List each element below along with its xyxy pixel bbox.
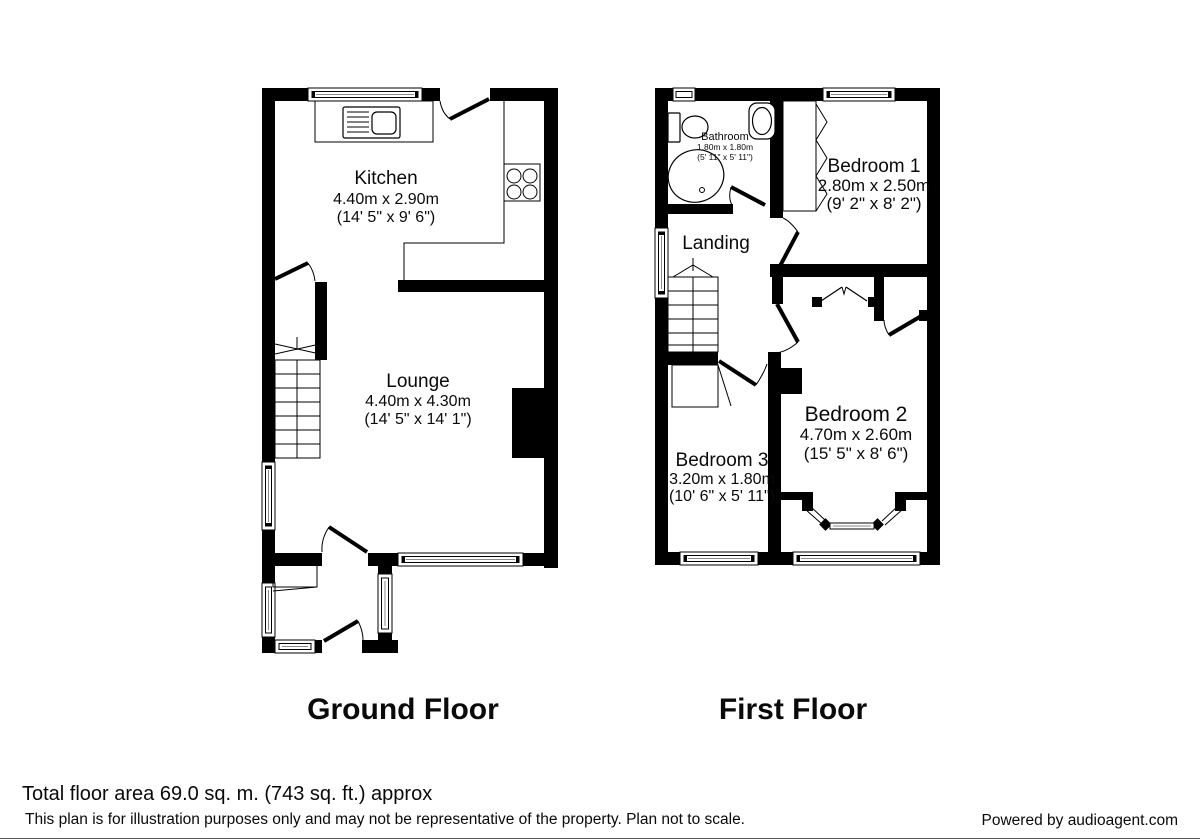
landing-label: Landing <box>682 233 750 254</box>
bathroom-dimensions-imperial: (5' 11" x 5' 11") <box>697 152 753 162</box>
lounge-side-window <box>262 462 275 530</box>
bathroom-door <box>730 187 765 205</box>
bedroom3-window <box>680 552 758 565</box>
first-floor-title: First Floor <box>719 693 868 726</box>
bedroom1-door <box>780 218 798 266</box>
kitchen-dimensions-imperial: (14' 5" x 9' 6") <box>337 209 435 226</box>
bedroom3-dimensions-imperial: (10' 6" x 5' 11") <box>669 488 775 505</box>
bedroom2-window <box>793 552 920 565</box>
bedroom3-door <box>719 361 767 385</box>
bedroom1-window <box>823 88 895 101</box>
lounge-dimensions-metric: 4.40m x 4.30m <box>365 393 471 410</box>
kitchen-window <box>308 88 422 101</box>
hall-front-window <box>275 640 315 653</box>
footer: Total floor area 69.0 sq. m. (743 sq. ft… <box>0 783 1200 839</box>
bedroom2-dimensions-metric: 4.70m x 2.60m <box>800 425 912 444</box>
lounge-door <box>322 527 367 552</box>
bedroom2-closet-double-doors <box>821 287 867 301</box>
basin-icon <box>749 103 775 139</box>
hall-closet <box>273 562 317 591</box>
bedroom3-dimensions-metric: 3.20m x 1.80m <box>669 471 775 488</box>
bedroom2-label: Bedroom 2 <box>805 403 908 426</box>
bathroom-window <box>673 88 695 101</box>
sink-bowl-icon <box>372 112 396 134</box>
stairs-first-floor <box>668 258 718 352</box>
floorplan-drawing: Kitchen 4.40m x 2.90m (14' 5" x 9' 6") L… <box>0 0 1200 840</box>
disclaimer-text: This plan is for illustration purposes o… <box>25 811 745 828</box>
stair-bulkhead <box>672 365 731 407</box>
kitchen-sink-counter <box>315 101 433 142</box>
powered-by-credit: Powered by audioagent.com <box>982 812 1178 829</box>
floorplan-document: Kitchen 4.40m x 2.90m (14' 5" x 9' 6") L… <box>0 0 1200 840</box>
bedroom2-dimensions-imperial: (15' 5" x 8' 6") <box>804 444 909 463</box>
front-door <box>324 621 363 641</box>
ground-floor-plan: Kitchen 4.40m x 2.90m (14' 5" x 9' 6") L… <box>262 88 558 726</box>
lounge-label: Lounge <box>386 371 449 392</box>
bedroom2-bay-window <box>781 492 927 531</box>
landing-window <box>655 228 668 298</box>
cupboard-door <box>275 263 315 281</box>
bedroom2-door <box>775 304 798 353</box>
hall-right-window <box>378 574 392 633</box>
ground-floor-title: Ground Floor <box>307 693 499 726</box>
kitchen-dimensions-metric: 4.40m x 2.90m <box>333 191 439 208</box>
bedroom3-label: Bedroom 3 <box>676 450 769 471</box>
bedroom1-dimensions-imperial: (9' 2" x 8' 2") <box>826 194 921 213</box>
kitchen-label: Kitchen <box>354 168 417 189</box>
chimney-breast-bedroom2 <box>781 368 802 394</box>
bedroom1-label: Bedroom 1 <box>828 156 921 177</box>
lounge-rear-window <box>398 553 523 566</box>
bathroom-dimensions-metric: 1.80m x 1.80m <box>697 142 753 152</box>
kitchen-door <box>440 99 489 119</box>
hob-icon <box>504 164 540 201</box>
first-floor-plan: Bathroom 1.80m x 1.80m (5' 11" x 5' 11")… <box>655 88 940 726</box>
chimney-breast-lounge <box>512 388 544 458</box>
stairs-ground-floor <box>275 337 320 458</box>
lounge-dimensions-imperial: (14' 5" x 14' 1") <box>364 411 471 428</box>
bedroom2-closet-door <box>884 315 923 335</box>
total-floor-area: Total floor area 69.0 sq. m. (743 sq. ft… <box>22 783 432 805</box>
bedroom1-dimensions-metric: 2.80m x 2.50m <box>818 176 930 195</box>
